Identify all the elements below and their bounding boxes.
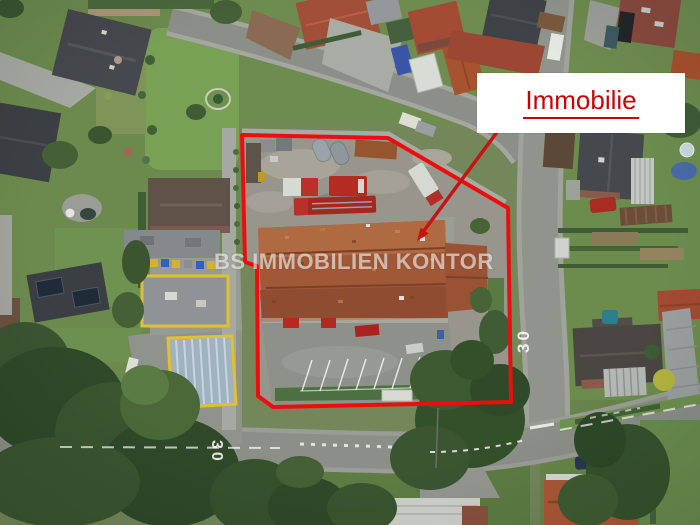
immobilie-label-text: Immobilie [523, 87, 638, 119]
aerial-photo: 30 30 BS IMMOBILIEN KONTOR Immobilie [0, 0, 700, 525]
immobilie-label-box: Immobilie [477, 73, 685, 133]
